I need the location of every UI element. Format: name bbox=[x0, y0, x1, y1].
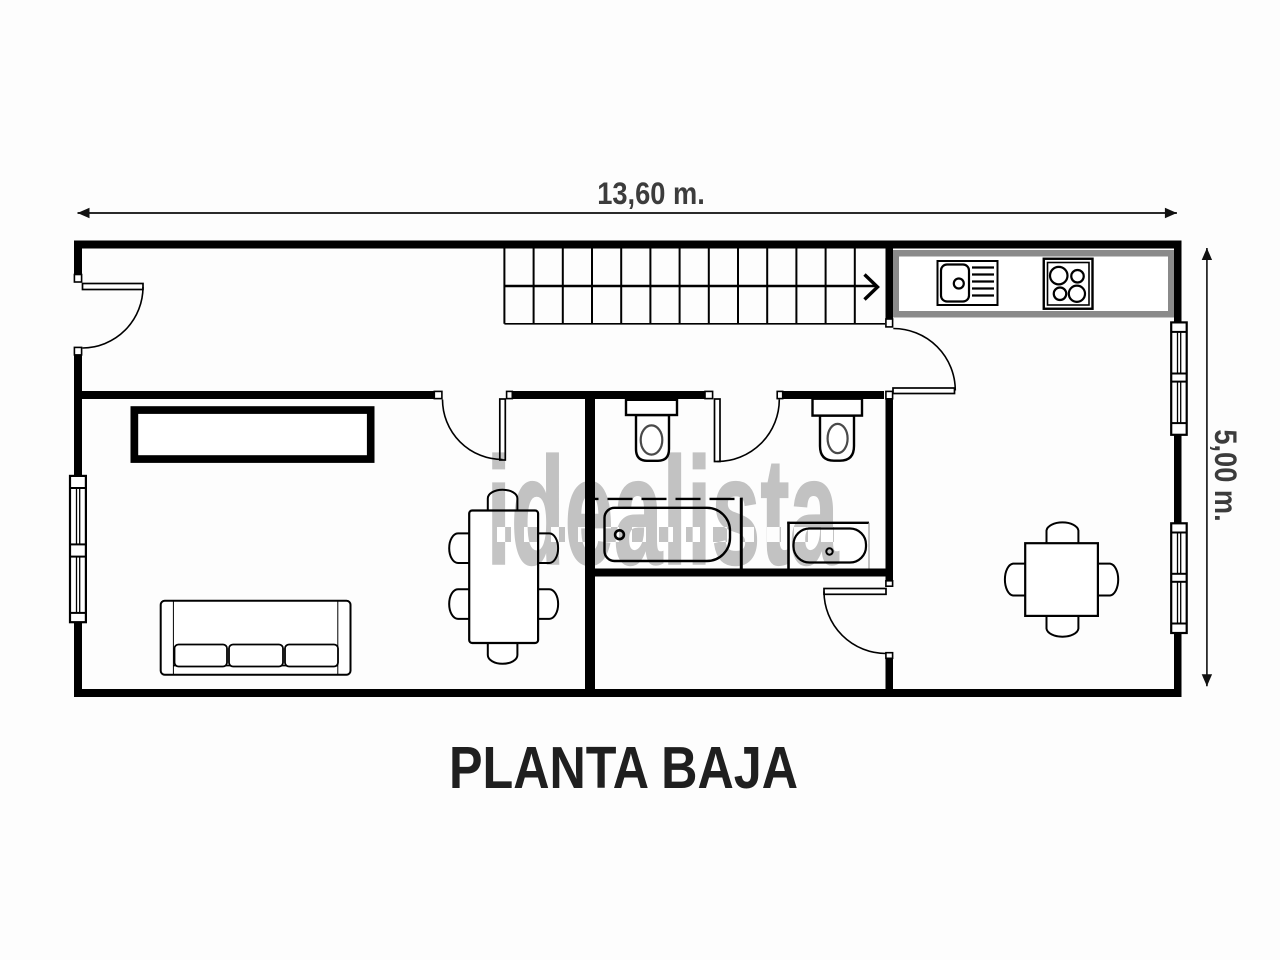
svg-text:idealista: idealista bbox=[486, 427, 839, 597]
svg-text:5,00 m.: 5,00 m. bbox=[1208, 429, 1243, 521]
svg-text:13,60 m.: 13,60 m. bbox=[597, 176, 705, 211]
svg-text:PLANTA BAJA: PLANTA BAJA bbox=[449, 734, 798, 801]
